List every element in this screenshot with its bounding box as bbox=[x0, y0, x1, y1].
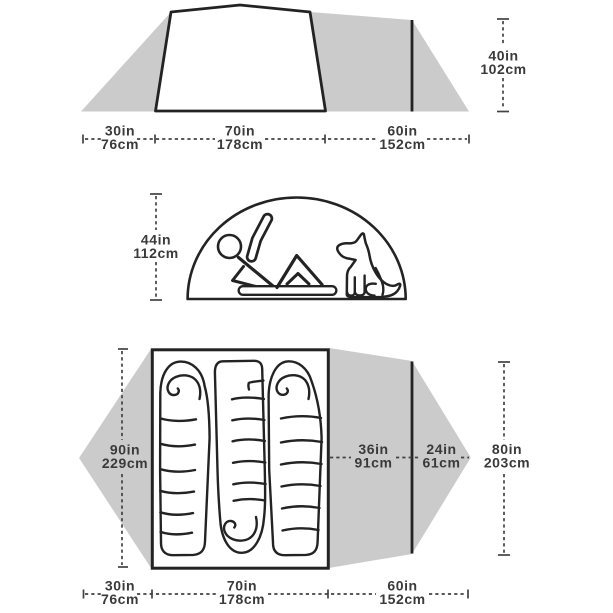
svg-text:76cm: 76cm bbox=[101, 136, 139, 152]
svg-text:178cm: 178cm bbox=[217, 136, 263, 152]
svg-text:76cm: 76cm bbox=[101, 591, 139, 607]
svg-text:112cm: 112cm bbox=[133, 245, 179, 261]
svg-text:102cm: 102cm bbox=[480, 61, 526, 77]
svg-text:61cm: 61cm bbox=[422, 454, 460, 470]
svg-text:178cm: 178cm bbox=[219, 591, 265, 607]
svg-text:91cm: 91cm bbox=[354, 454, 392, 470]
svg-text:152cm: 152cm bbox=[379, 591, 425, 607]
svg-text:152cm: 152cm bbox=[379, 136, 425, 152]
svg-text:229cm: 229cm bbox=[102, 455, 148, 471]
svg-text:203cm: 203cm bbox=[484, 454, 530, 470]
